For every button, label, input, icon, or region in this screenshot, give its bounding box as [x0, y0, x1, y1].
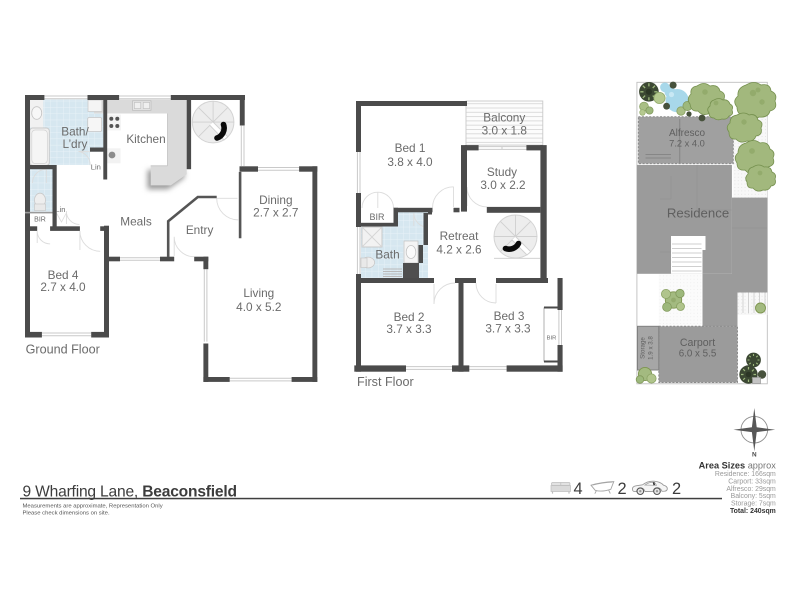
- svg-text:Carport: 33sqm: Carport: 33sqm: [728, 478, 776, 485]
- svg-text:6.0 x 5.5: 6.0 x 5.5: [679, 349, 717, 360]
- svg-text:3.7 x 3.3: 3.7 x 3.3: [485, 322, 531, 336]
- svg-text:First Floor: First Floor: [357, 375, 414, 389]
- svg-text:4: 4: [574, 480, 583, 498]
- svg-text:7.2 x 4.0: 7.2 x 4.0: [669, 138, 705, 148]
- svg-text:Balcony: 5sqm: Balcony: 5sqm: [731, 493, 776, 500]
- svg-text:Total: 240sqm: Total: 240sqm: [730, 508, 776, 515]
- svg-text:BIR: BIR: [369, 212, 385, 222]
- svg-text:Entry: Entry: [186, 223, 214, 237]
- svg-text:Bed 1: Bed 1: [395, 141, 426, 155]
- svg-text:4.2 x 2.6: 4.2 x 2.6: [436, 243, 482, 257]
- svg-text:3.0 x 1.8: 3.0 x 1.8: [482, 124, 528, 138]
- svg-text:Bath: Bath: [375, 248, 399, 262]
- svg-text:Lin: Lin: [91, 162, 101, 171]
- svg-text:1.9 x 3.8: 1.9 x 3.8: [648, 336, 655, 360]
- svg-text:3.0 x 2.2: 3.0 x 2.2: [480, 178, 525, 192]
- svg-text:L’dry: L’dry: [63, 137, 88, 151]
- svg-text:2.7 x 2.7: 2.7 x 2.7: [253, 206, 298, 220]
- svg-text:BIR: BIR: [34, 216, 46, 223]
- svg-text:Kitchen: Kitchen: [126, 132, 165, 146]
- svg-text:Carport: Carport: [680, 337, 715, 349]
- svg-text:3.7 x 3.3: 3.7 x 3.3: [386, 322, 432, 336]
- svg-text:Ground Floor: Ground Floor: [26, 343, 100, 357]
- svg-text:Alfresco: 29sqm: Alfresco: 29sqm: [726, 486, 776, 493]
- svg-text:Storage: Storage: [640, 337, 647, 359]
- svg-text:3.8 x 4.0: 3.8 x 4.0: [387, 155, 433, 169]
- svg-text:Alfresco: Alfresco: [669, 128, 706, 139]
- svg-text:Storage: 7sqm: Storage: 7sqm: [731, 501, 776, 508]
- svg-text:Residence: 166sqm: Residence: 166sqm: [715, 471, 776, 478]
- svg-text:2: 2: [672, 480, 681, 498]
- svg-text:Retreat: Retreat: [440, 229, 479, 243]
- svg-text:Please check dimensions on sit: Please check dimensions on site.: [23, 510, 110, 516]
- svg-text:4.0 x 5.2: 4.0 x 5.2: [236, 300, 281, 314]
- svg-text:N: N: [752, 452, 757, 459]
- svg-text:BIR: BIR: [547, 335, 557, 341]
- svg-text:Measurements are approximate,: Measurements are approximate, Representa…: [23, 503, 163, 509]
- svg-text:2.7 x 4.0: 2.7 x 4.0: [40, 280, 86, 294]
- svg-text:Living: Living: [243, 286, 274, 300]
- svg-text:Meals: Meals: [120, 214, 152, 228]
- svg-text:Residence: Residence: [667, 206, 729, 221]
- svg-text:2: 2: [618, 480, 627, 498]
- svg-text:Lin: Lin: [55, 205, 65, 214]
- svg-text:Area Sizes approx: Area Sizes approx: [699, 460, 777, 470]
